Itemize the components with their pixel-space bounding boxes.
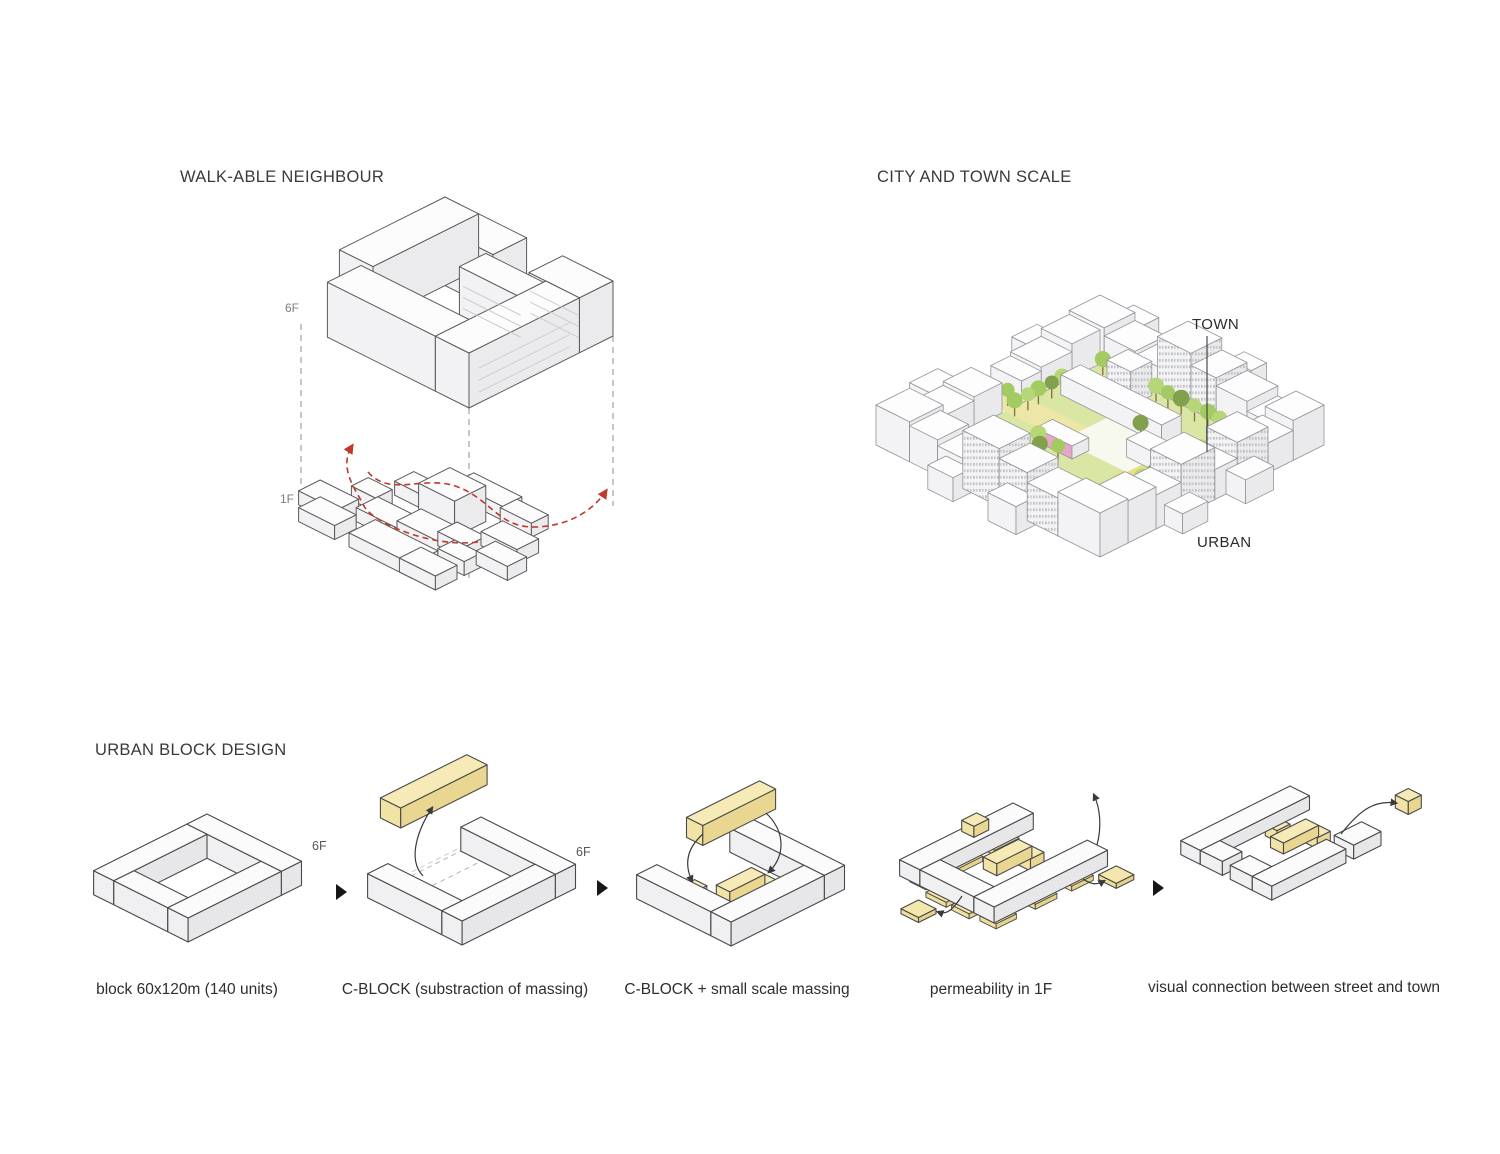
step4-drawing — [900, 795, 1134, 929]
town-label: TOWN — [1192, 316, 1239, 333]
walkable-diagram: 6F 1F — [255, 192, 645, 602]
city-diagram: TOWN URBAN — [860, 292, 1350, 604]
city-title: CITY AND TOWN SCALE — [877, 168, 1072, 187]
step5-visual-connection-diagram — [1170, 726, 1470, 916]
urban-block-title: URBAN BLOCK DESIGN — [95, 741, 287, 760]
step-arrow-icon — [336, 884, 347, 900]
page: WALK-ABLE NEIGHBOUR CITY AND TOWN SCALE … — [0, 0, 1500, 1154]
step1-floor-label: 6F — [312, 839, 327, 853]
step2-drawing — [368, 755, 576, 945]
step-arrow-icon — [597, 880, 608, 896]
step1-block-diagram: 6F — [80, 792, 350, 952]
step2-cblock-diagram: 6F — [355, 740, 595, 950]
city-drawing — [876, 295, 1324, 557]
floor-label-6f: 6F — [285, 301, 299, 315]
step5-caption: visual connection between street and tow… — [1134, 979, 1454, 997]
step4-caption: permeability in 1F — [861, 981, 1121, 999]
floor-label-1f: 1F — [280, 492, 294, 506]
step5-drawing — [1181, 786, 1422, 900]
step-arrow-icon — [1153, 880, 1164, 896]
urban-label: URBAN — [1197, 534, 1252, 551]
step2-floor-label: 6F — [576, 845, 591, 859]
step2-caption: C-BLOCK (substraction of massing) — [335, 981, 595, 999]
step3-small-massing-diagram — [615, 752, 865, 952]
walkable-title: WALK-ABLE NEIGHBOUR — [180, 168, 384, 187]
step4-permeability-diagram — [880, 780, 1155, 938]
step1-drawing — [94, 814, 302, 942]
step1-caption: block 60x120m (140 units) — [57, 981, 317, 999]
walkable-drawing — [299, 197, 613, 590]
step3-caption: C-BLOCK + small scale massing — [607, 981, 867, 999]
step3-drawing — [637, 781, 845, 946]
